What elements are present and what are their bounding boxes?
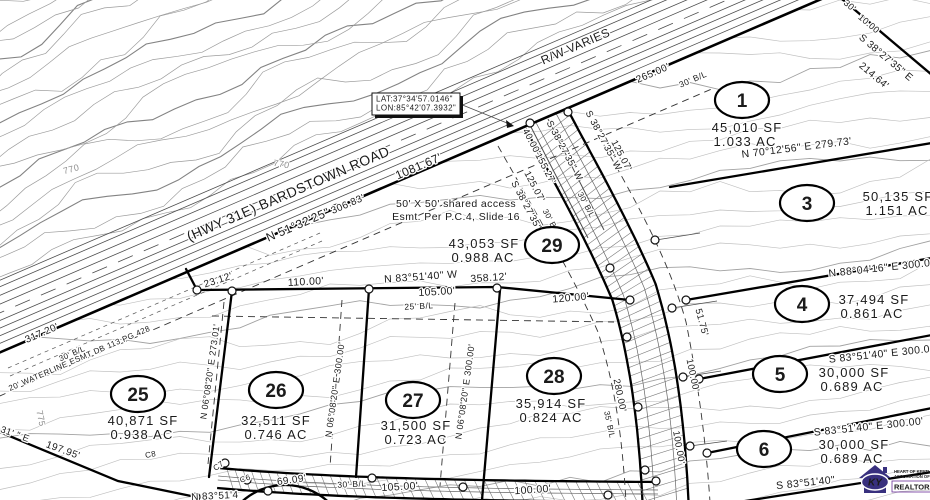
bearing-fragment-n8351: N 83°51'4 bbox=[191, 490, 239, 500]
lot-4: 4 37,494 SF 0.861 AC bbox=[775, 286, 909, 322]
plat-map: LAT:37°34'57.0146" LON:85°42'07.3932" (H… bbox=[0, 0, 930, 500]
survey-plat-drawing: LAT:37°34'57.0146" LON:85°42'07.3932" (H… bbox=[0, 0, 930, 500]
lot-29-ac: 0.988 AC bbox=[451, 250, 514, 265]
lot-25-sf: 40,871 SF bbox=[108, 413, 179, 428]
dim-358: 358.12' bbox=[470, 271, 508, 286]
lot-5-number: 5 bbox=[775, 365, 786, 386]
lot-4-number: 4 bbox=[797, 295, 808, 316]
lot-3-ac: 1.151 AC bbox=[865, 203, 928, 218]
logo-realtors-text: REALTORS® bbox=[894, 483, 930, 492]
lot-29-number: 29 bbox=[541, 236, 562, 257]
lot-1-ac: 1.033 AC bbox=[713, 134, 776, 149]
dim-110: 110.00' bbox=[287, 275, 324, 289]
lot-26-sf: 32,511 SF bbox=[241, 413, 311, 428]
lot-6-sf: 30,000 SF bbox=[819, 437, 890, 452]
dim-100c: 100.00' bbox=[514, 483, 552, 498]
lot-3-number: 3 bbox=[802, 194, 813, 215]
shared-access-note-2: Esmt. Per P.C.4, Slide 16 bbox=[392, 211, 520, 223]
lot-27-sf: 31,500 SF bbox=[381, 418, 452, 433]
lot-1-number: 1 bbox=[737, 91, 748, 112]
lot-5-ac: 0.689 AC bbox=[820, 379, 883, 394]
longitude-value: LON:85°42'07.3932" bbox=[376, 104, 456, 113]
lot-3-sf: 50,135 SF bbox=[863, 189, 930, 204]
logo-ky-text: KY bbox=[868, 478, 883, 489]
latitude-value: LAT:37°34'57.0146" bbox=[376, 95, 453, 104]
building-line-30-street: 30' B/L bbox=[337, 478, 366, 490]
building-line-25-label: 25' B/L bbox=[404, 300, 433, 312]
logo-chimney-icon bbox=[883, 467, 887, 473]
lot-25-ac: 0.938 AC bbox=[110, 427, 173, 442]
lot-1-sf: 45,010 SF bbox=[712, 120, 783, 135]
dim-105b: 105.00' bbox=[381, 480, 418, 494]
curve-label-c8: C8 bbox=[144, 449, 157, 460]
lot-27-ac: 0.723 AC bbox=[384, 432, 447, 447]
lot-27-number: 27 bbox=[402, 391, 423, 412]
logo-line2: ASSOCIATION OF bbox=[894, 474, 930, 479]
dim-105a: 105.00' bbox=[418, 285, 455, 299]
lot-6-number: 6 bbox=[759, 440, 770, 461]
lot-26-number: 26 bbox=[265, 381, 286, 402]
shared-access-note-1: 50' X 50' shared access bbox=[396, 198, 516, 210]
lot-6-ac: 0.689 AC bbox=[820, 451, 883, 466]
lot-28-ac: 0.824 AC bbox=[519, 410, 582, 425]
lot-28-number: 28 bbox=[543, 367, 564, 388]
lot-29-sf: 43,053 SF bbox=[449, 236, 520, 251]
lot-4-sf: 37,494 SF bbox=[839, 292, 910, 307]
lot-4-ac: 0.861 AC bbox=[840, 306, 903, 321]
lot-28-sf: 35,914 SF bbox=[516, 396, 587, 411]
lot-5-sf: 30,000 SF bbox=[819, 365, 890, 380]
lot-25-number: 25 bbox=[127, 385, 149, 406]
lot-26-ac: 0.746 AC bbox=[244, 427, 307, 442]
